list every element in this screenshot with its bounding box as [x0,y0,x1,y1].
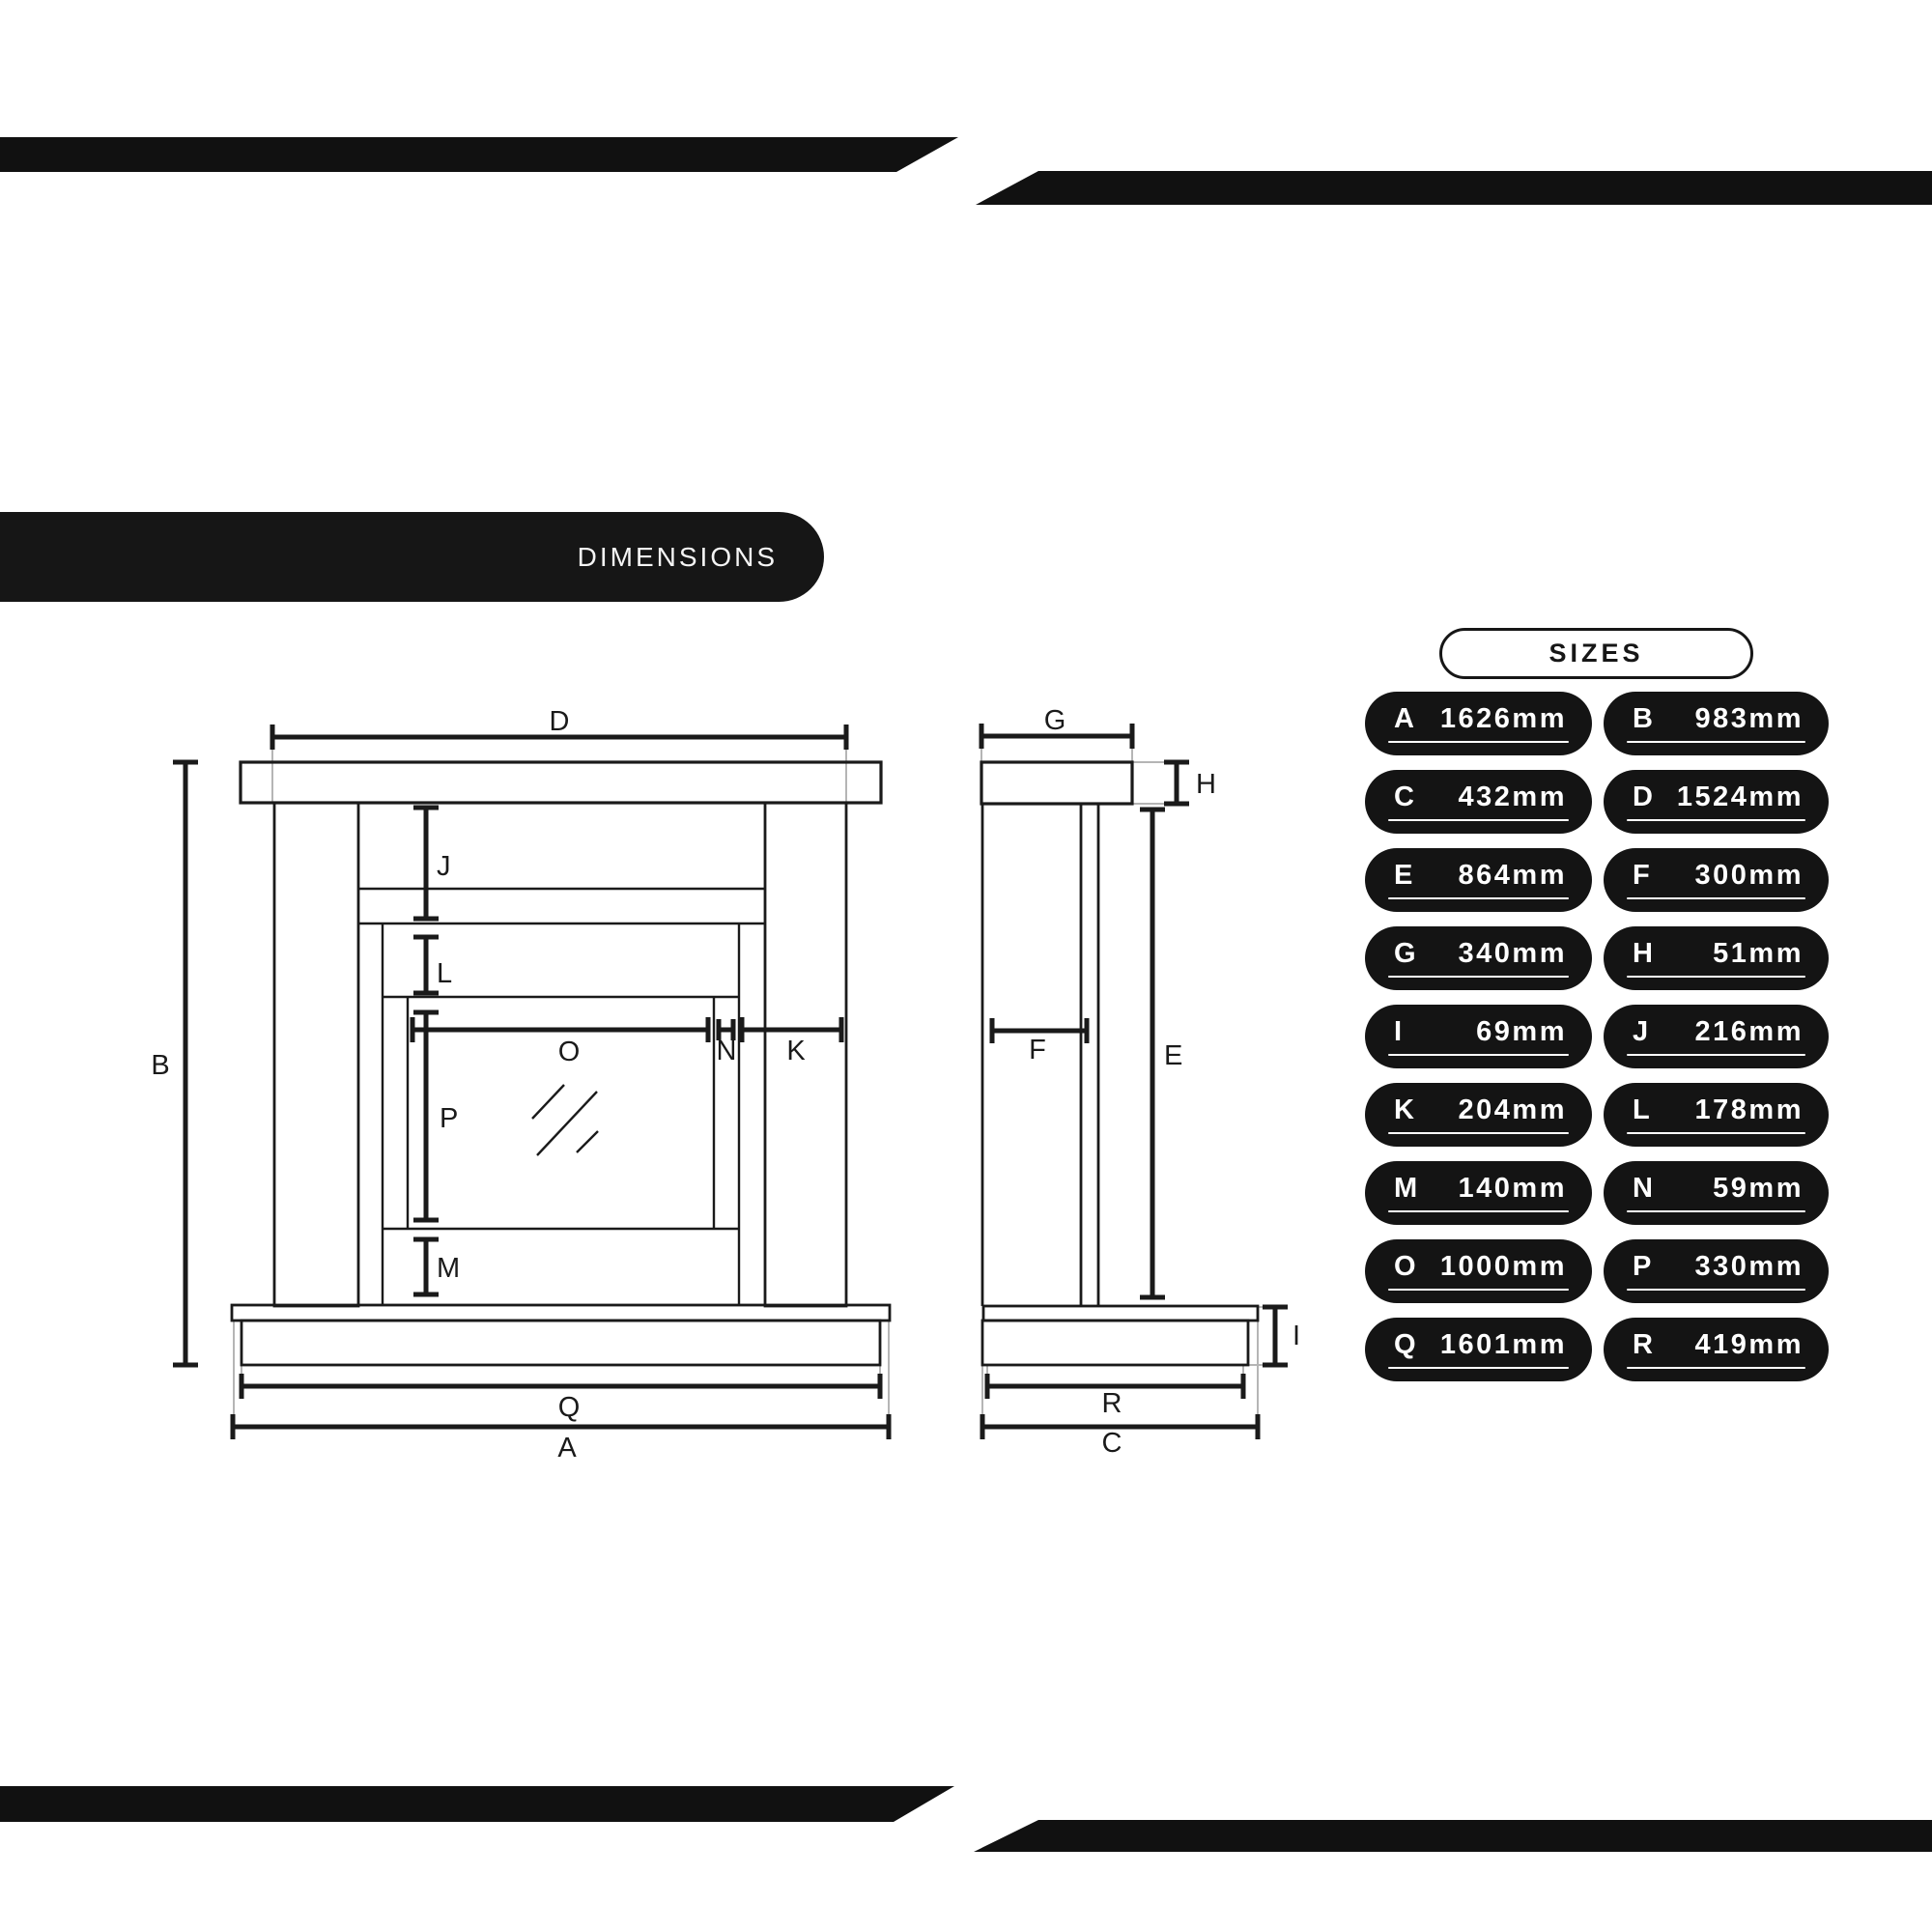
front-dim-label-J: J [437,851,451,882]
size-value: 300mm [1695,860,1804,892]
size-pill-H: H51mm [1604,926,1829,990]
side-dim-label-R: R [1102,1388,1122,1419]
size-letter: I [1394,1016,1405,1048]
side-dim-label-I: I [1293,1321,1300,1351]
front-dim-labels: D B J L P M O N K Q A [151,706,806,1463]
size-letter: A [1394,703,1416,735]
pill-underline [1627,1289,1805,1292]
size-value: 204mm [1459,1094,1567,1126]
front-dim-label-O: O [558,1037,581,1067]
pill-underline [1388,1132,1569,1135]
front-hearth-base [241,1321,880,1365]
size-letter: B [1633,703,1655,735]
size-value: 1524mm [1677,781,1804,813]
bottom-bar-right [974,1820,1932,1852]
size-value: 51mm [1713,938,1804,970]
front-dim-label-D: D [550,706,570,737]
size-letter: H [1633,938,1655,970]
pill-underline [1388,1289,1569,1292]
bottom-decor-bars [0,1786,1932,1852]
size-pill-C: C432mm [1365,770,1592,834]
bottom-bar-left [0,1786,954,1822]
dim-M [413,1239,439,1294]
size-value: 432mm [1459,781,1567,813]
dim-L [413,937,439,993]
front-extension-lines [234,740,889,1427]
pill-underline [1627,976,1805,979]
sizes-table: A1626mm B983mm C432mm D1524mm E864mm F30… [1365,692,1830,1381]
dim-E [1140,810,1165,1297]
front-left-leg [274,803,358,1306]
size-value: 59mm [1713,1173,1804,1205]
size-value: 419mm [1695,1329,1804,1361]
size-value: 864mm [1459,860,1567,892]
size-value: 1626mm [1440,703,1567,735]
top-bar-left [0,137,958,172]
top-bar-right [976,171,1932,205]
glass-reflection-marks [532,1085,598,1155]
size-letter: P [1633,1251,1654,1283]
front-mantel-shelf [241,762,881,803]
pill-underline [1388,1054,1569,1057]
front-dim-label-N: N [717,1036,737,1066]
pill-underline [1388,1210,1569,1213]
pill-underline [1388,819,1569,822]
side-view-drawing [981,740,1287,1427]
dim-J [413,808,439,919]
size-pill-F: F300mm [1604,848,1829,912]
size-letter: F [1633,860,1652,892]
dimensions-badge: DIMENSIONS [0,512,824,602]
front-dimension-lines [173,724,889,1439]
front-dim-label-Q: Q [558,1392,581,1423]
size-letter: J [1633,1016,1651,1048]
size-letter: E [1394,860,1415,892]
dim-P [413,1012,439,1220]
pill-underline [1627,897,1805,900]
pill-underline [1627,1367,1805,1370]
size-letter: D [1633,781,1655,813]
size-letter: G [1394,938,1418,970]
size-pill-P: P330mm [1604,1239,1829,1303]
size-pill-M: M140mm [1365,1161,1592,1225]
side-dim-label-E: E [1164,1040,1182,1071]
pill-underline [1627,1210,1805,1213]
size-letter: M [1394,1173,1420,1205]
size-value: 216mm [1695,1016,1804,1048]
front-dim-label-P: P [440,1103,458,1134]
front-dim-label-M: M [437,1253,460,1284]
side-dim-label-C: C [1102,1428,1122,1459]
size-letter: O [1394,1251,1418,1283]
size-pill-L: L178mm [1604,1083,1829,1147]
size-value: 330mm [1695,1251,1804,1283]
front-dim-label-A: A [557,1433,577,1463]
dim-I [1263,1307,1288,1365]
side-dim-label-H: H [1196,769,1216,800]
size-pill-I: I69mm [1365,1005,1592,1068]
pill-underline [1627,1054,1805,1057]
size-value: 140mm [1459,1173,1567,1205]
front-dim-label-K: K [786,1036,806,1066]
front-hearth-top [232,1305,890,1321]
size-pill-A: A1626mm [1365,692,1592,755]
size-value: 983mm [1695,703,1804,735]
side-dimension-lines [981,724,1288,1439]
size-pill-K: K204mm [1365,1083,1592,1147]
front-right-leg [765,803,846,1306]
size-letter: N [1633,1173,1655,1205]
page: D B J L P M O N K Q A [0,0,1932,1932]
size-pill-N: N59mm [1604,1161,1829,1225]
dim-B [173,762,198,1365]
size-pill-D: D1524mm [1604,770,1829,834]
pill-underline [1627,741,1805,744]
side-dim-labels: G H F E I R C [1029,705,1300,1459]
size-pill-B: B983mm [1604,692,1829,755]
size-letter: Q [1394,1329,1418,1361]
sizes-title-label: SIZES [1548,639,1643,668]
front-dim-label-B: B [151,1050,169,1081]
size-letter: R [1633,1329,1655,1361]
size-value: 178mm [1695,1094,1804,1126]
pill-underline [1388,741,1569,744]
size-pill-J: J216mm [1604,1005,1829,1068]
dimensions-badge-label: DIMENSIONS [578,542,778,573]
size-letter: C [1394,781,1416,813]
side-hearth-base [982,1321,1248,1365]
pill-underline [1388,897,1569,900]
size-pill-Q: Q1601mm [1365,1318,1592,1381]
size-pill-G: G340mm [1365,926,1592,990]
pill-underline [1627,819,1805,822]
size-value: 340mm [1459,938,1567,970]
side-dim-label-F: F [1029,1035,1046,1065]
size-pill-E: E864mm [1365,848,1592,912]
size-value: 1000mm [1440,1251,1567,1283]
top-decor-bars [0,137,1932,205]
front-dim-label-L: L [437,958,452,989]
sizes-title-pill: SIZES [1439,628,1753,679]
side-hearth-top [983,1306,1258,1321]
size-pill-O: O1000mm [1365,1239,1592,1303]
dim-H [1164,762,1189,804]
pill-underline [1627,1132,1805,1135]
side-dim-label-G: G [1044,705,1066,736]
size-pill-R: R419mm [1604,1318,1829,1381]
front-view-drawing [232,740,890,1427]
size-value: 69mm [1476,1016,1567,1048]
side-mantel-shelf [981,762,1132,804]
size-letter: K [1394,1094,1416,1126]
size-letter: L [1633,1094,1652,1126]
side-extension-lines [981,740,1287,1427]
pill-underline [1388,1367,1569,1370]
pill-underline [1388,976,1569,979]
size-value: 1601mm [1440,1329,1567,1361]
